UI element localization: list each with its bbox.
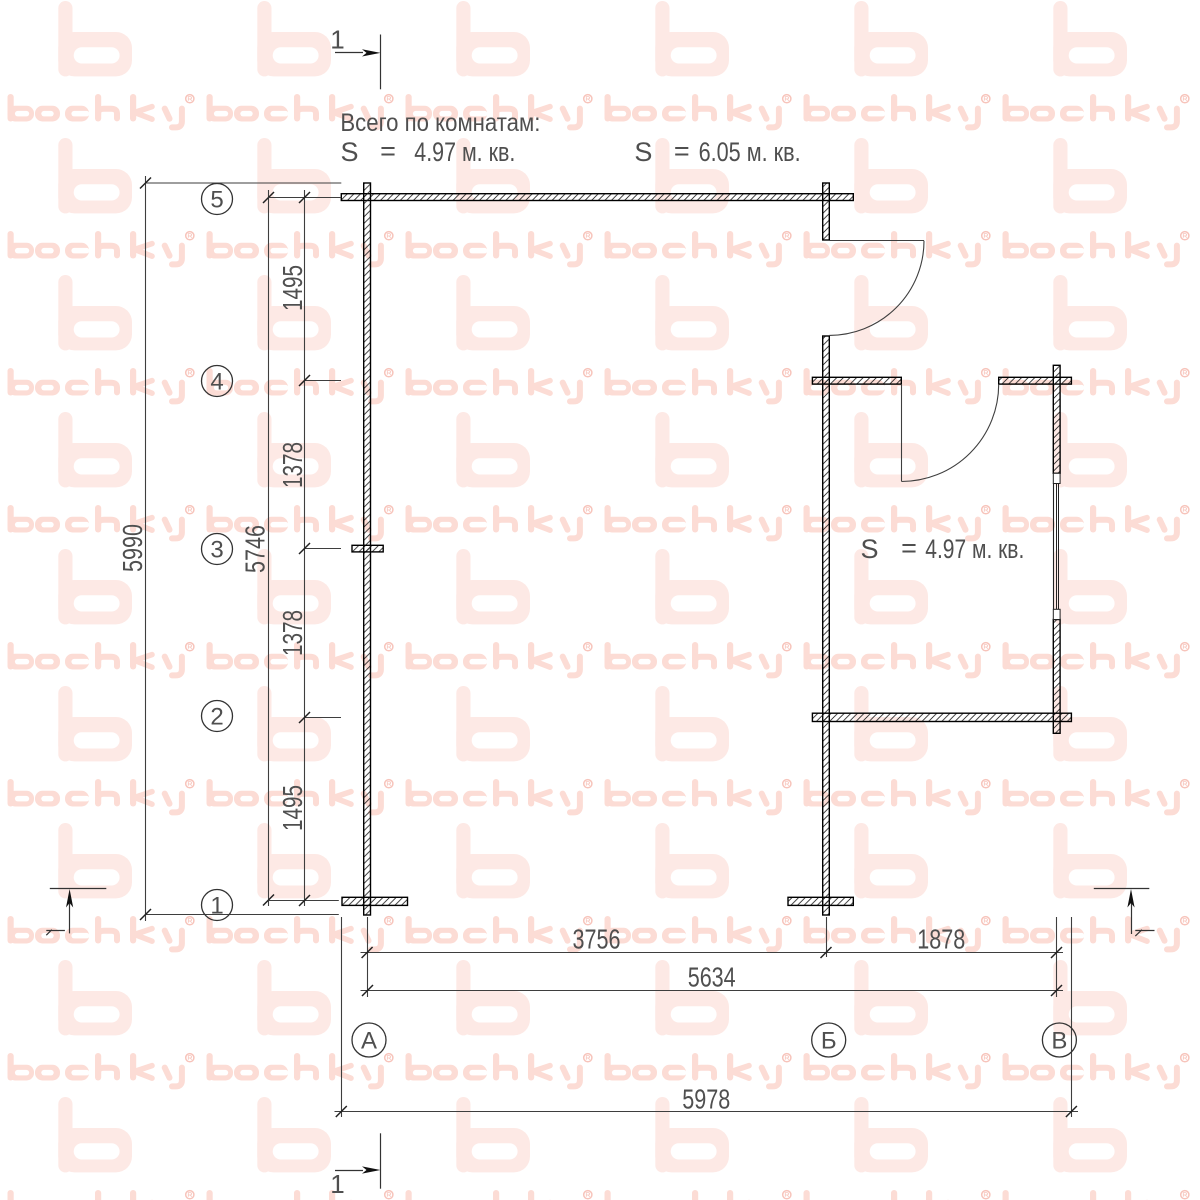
svg-text:5990: 5990 xyxy=(117,524,148,572)
svg-text:=: = xyxy=(901,533,917,563)
svg-text:S: S xyxy=(341,137,359,167)
svg-text:5634: 5634 xyxy=(688,962,736,993)
svg-text:1495: 1495 xyxy=(277,785,308,831)
svg-text:4.97 м. кв.: 4.97 м. кв. xyxy=(925,534,1024,564)
svg-text:А: А xyxy=(361,1028,377,1055)
svg-text:5746: 5746 xyxy=(240,525,271,573)
svg-text:5978: 5978 xyxy=(682,1084,730,1115)
svg-text:=: = xyxy=(380,136,396,166)
svg-text:1378: 1378 xyxy=(277,442,308,488)
svg-text:В: В xyxy=(1051,1028,1067,1055)
svg-text:4: 4 xyxy=(210,369,223,396)
svg-text:1: 1 xyxy=(210,893,223,920)
svg-text:=: = xyxy=(674,136,690,166)
svg-text:3: 3 xyxy=(210,537,223,564)
svg-text:1: 1 xyxy=(330,1169,344,1199)
svg-text:6.05 м. кв.: 6.05 м. кв. xyxy=(699,137,801,167)
svg-text:3756: 3756 xyxy=(573,924,621,955)
svg-text:1878: 1878 xyxy=(917,924,965,955)
svg-text:4.97 м. кв.: 4.97 м. кв. xyxy=(414,137,515,167)
svg-text:S: S xyxy=(861,534,879,564)
svg-text:5: 5 xyxy=(210,187,223,214)
svg-text:1: 1 xyxy=(330,25,344,55)
svg-text:1495: 1495 xyxy=(277,265,308,311)
svg-text:2: 2 xyxy=(210,704,223,731)
svg-text:Б: Б xyxy=(821,1028,837,1055)
svg-text:S: S xyxy=(634,137,652,167)
svg-text:1378: 1378 xyxy=(277,610,308,656)
svg-text:Всего по комнатам:: Всего по комнатам: xyxy=(340,109,540,137)
